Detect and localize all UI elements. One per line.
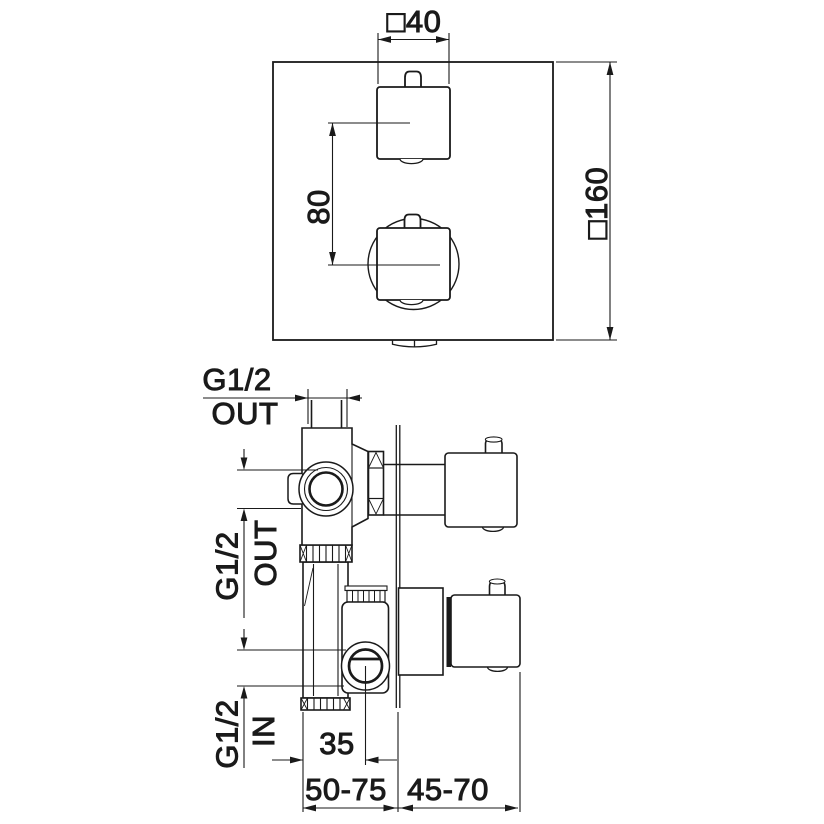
handle-pin-icon — [405, 215, 421, 229]
dim-handle-width-label: □40 — [387, 4, 442, 39]
handle-square — [451, 595, 520, 667]
dim-wall-depth-label: 50-75 — [305, 772, 387, 807]
dim-plate-size-label: □160 — [579, 167, 614, 239]
top-outlet-pipe — [312, 400, 342, 428]
inlet-direction-label: IN — [246, 715, 281, 747]
side-outlet-thread-label: G1/2 — [210, 531, 245, 600]
dim-handle-spacing-label: 80 — [301, 189, 336, 224]
handle-pin-icon — [405, 72, 421, 88]
front-view: □40 80 □160 — [273, 4, 617, 347]
handle-bottom-arc — [400, 300, 423, 305]
hex-adapter — [369, 452, 384, 516]
handle-square — [445, 453, 517, 527]
diverter-handle-side — [447, 579, 521, 671]
side-outlet-direction-label: OUT — [248, 520, 283, 587]
pin-top-arc — [489, 579, 505, 584]
section-view: G1/2 OUT G1/2 OUT G1/2 IN — [202, 362, 520, 812]
diverter-handle-front — [368, 215, 459, 310]
temperature-handle-side — [445, 437, 517, 531]
technical-drawing-page: □40 80 □160 — [0, 0, 824, 824]
dim-inlet-offset-label: 35 — [319, 726, 354, 761]
handle-bottom-arc — [400, 159, 423, 164]
top-outlet-thread-label: G1/2 — [202, 362, 271, 397]
mixer-installation-drawing: □40 80 □160 — [0, 0, 824, 824]
inlet-end-nut — [301, 698, 350, 710]
upper-coupling-nut — [300, 545, 352, 562]
plate-bottom-tab — [393, 340, 437, 347]
dim-handle-depth-label: 45-70 — [407, 772, 489, 807]
handle-stem-upper — [384, 465, 446, 516]
top-outlet-direction-label: OUT — [212, 396, 279, 431]
pin-top-arc — [485, 437, 502, 442]
inlet-thread-label: G1/2 — [210, 699, 245, 768]
handle-square — [377, 228, 450, 300]
diverter-flange-side — [399, 588, 444, 675]
